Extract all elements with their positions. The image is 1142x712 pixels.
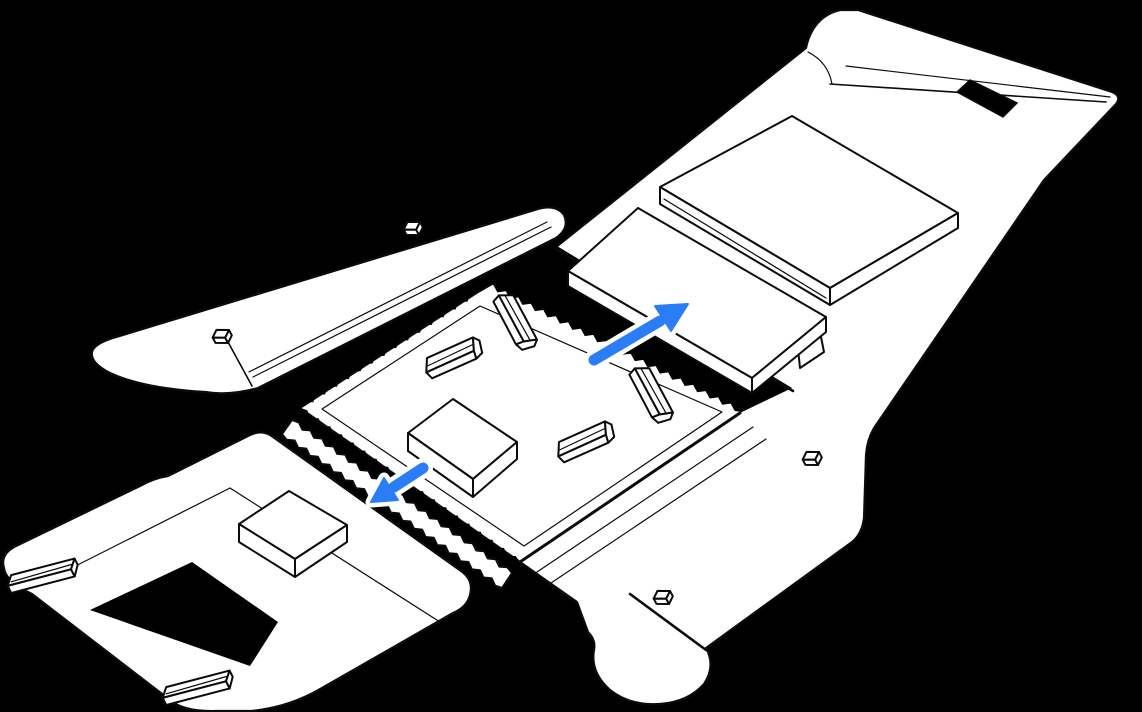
illustration-canvas (0, 0, 1142, 712)
packing-instruction-illustration (0, 0, 1142, 712)
